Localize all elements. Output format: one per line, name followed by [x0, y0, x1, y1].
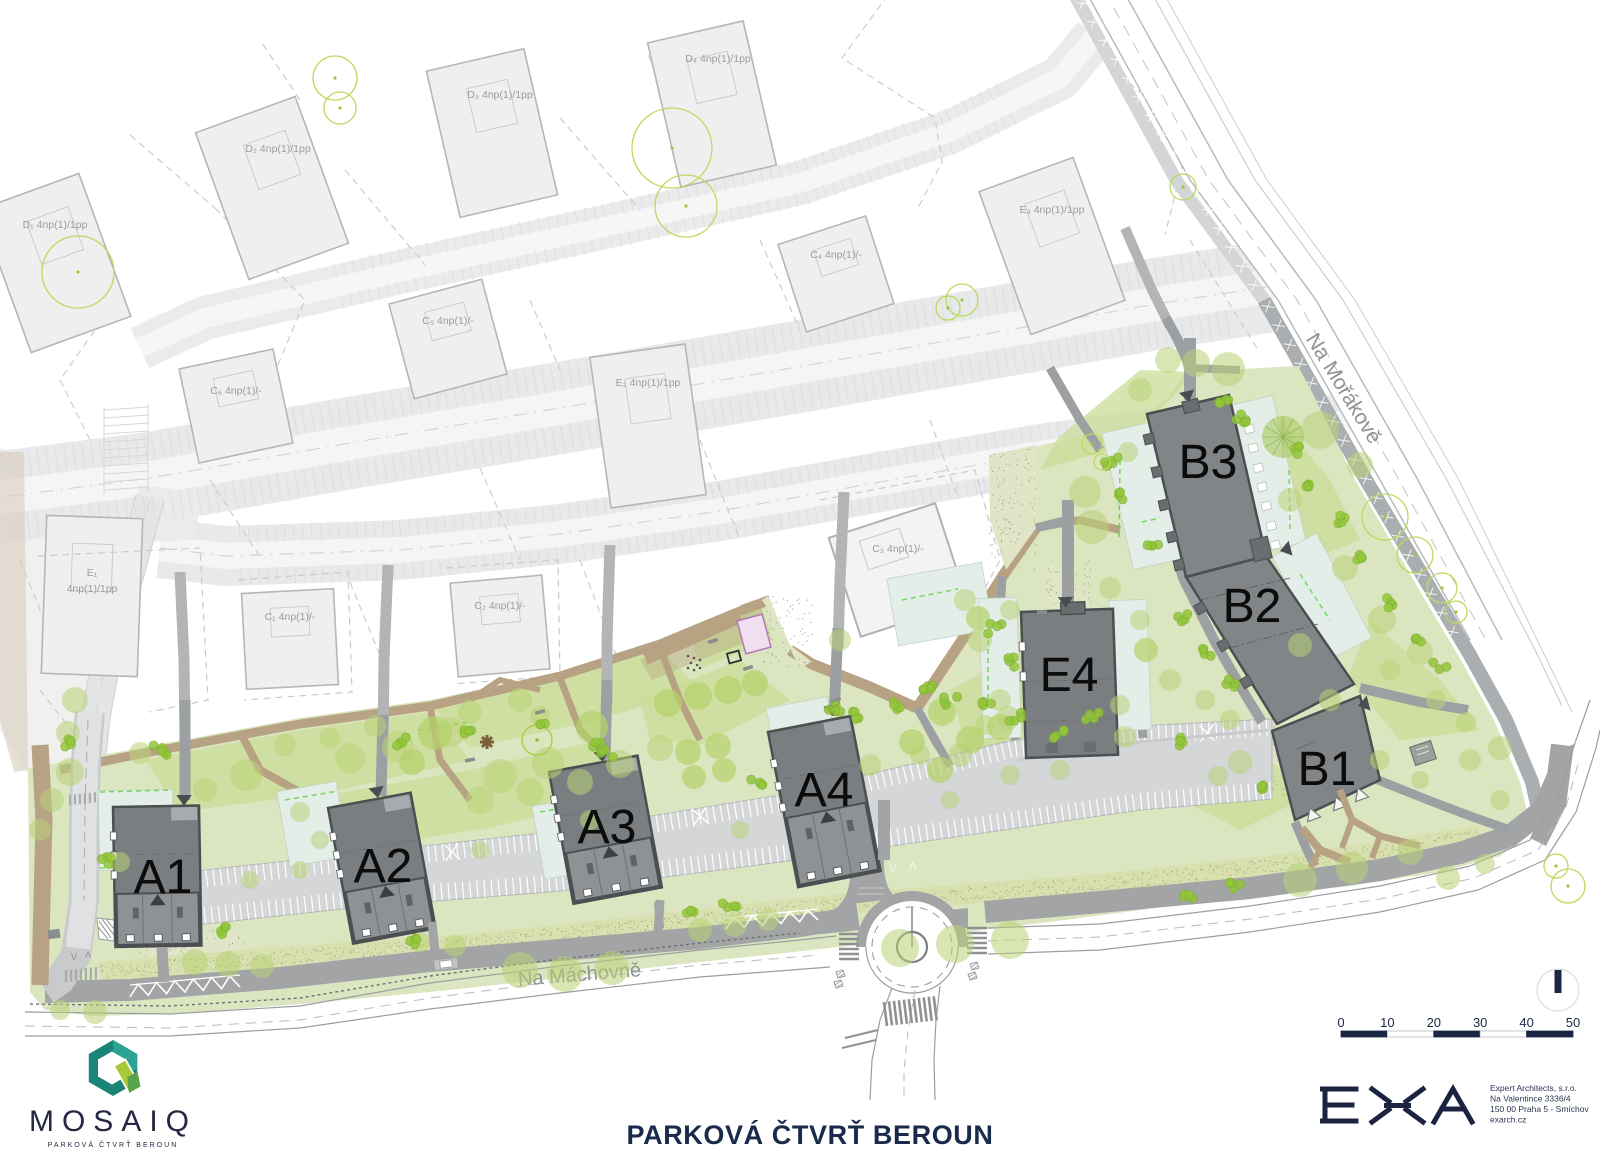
svg-text:A2: A2	[354, 840, 413, 893]
svg-text:Λ: Λ	[909, 859, 917, 873]
svg-text:B2: B2	[1223, 580, 1282, 633]
svg-text:E₂ 4np(1)/1pp: E₂ 4np(1)/1pp	[616, 377, 681, 389]
svg-text:Expert Architects, s.r.o.: Expert Architects, s.r.o.	[1490, 1083, 1577, 1093]
svg-text:D₁ 4np(1)/1pp: D₁ 4np(1)/1pp	[23, 219, 88, 231]
svg-text:exarch.cz: exarch.cz	[1490, 1115, 1526, 1125]
svg-text:0: 0	[1337, 1015, 1344, 1030]
svg-text:E4: E4	[1040, 649, 1099, 702]
svg-text:C₃ 4np(1)/-: C₃ 4np(1)/-	[872, 543, 924, 555]
svg-text:C₆ 4np(1)/-: C₆ 4np(1)/-	[210, 385, 262, 397]
svg-text:V: V	[71, 952, 77, 962]
svg-text:150 00 Praha 5 - Smíchov: 150 00 Praha 5 - Smíchov	[1490, 1104, 1590, 1114]
svg-text:C₅ 4np(1)/-: C₅ 4np(1)/-	[422, 315, 474, 327]
svg-text:30: 30	[1473, 1015, 1487, 1030]
svg-text:B1: B1	[1298, 743, 1357, 796]
svg-text:E₁: E₁	[87, 567, 98, 579]
svg-text:V: V	[889, 861, 897, 875]
svg-text:40: 40	[1519, 1015, 1533, 1030]
svg-text:4np(1)/1pp: 4np(1)/1pp	[67, 583, 118, 595]
svg-text:50: 50	[1566, 1015, 1580, 1030]
svg-text:Na Valentince 3336/4: Na Valentince 3336/4	[1490, 1094, 1571, 1104]
svg-text:A1: A1	[134, 851, 193, 904]
svg-text:A3: A3	[578, 801, 637, 854]
svg-text:C₂ 4np(1)/-: C₂ 4np(1)/-	[474, 600, 526, 612]
svg-text:D₃ 4np(1)/1pp: D₃ 4np(1)/1pp	[467, 89, 533, 101]
svg-text:D₄ 4np(1)/1pp: D₄ 4np(1)/1pp	[685, 53, 751, 65]
svg-text:Λ: Λ	[85, 950, 91, 960]
svg-text:10: 10	[1380, 1015, 1394, 1030]
svg-text:20: 20	[1427, 1015, 1441, 1030]
svg-text:MOSAIQ: MOSAIQ	[29, 1105, 197, 1138]
svg-text:PARKOVÁ ČTVRŤ BEROUN: PARKOVÁ ČTVRŤ BEROUN	[48, 1140, 179, 1149]
svg-text:E₃ 4np(1)/1pp: E₃ 4np(1)/1pp	[1020, 204, 1085, 216]
svg-text:D₂ 4np(1)/1pp: D₂ 4np(1)/1pp	[245, 143, 311, 155]
svg-text:A4: A4	[795, 764, 854, 817]
svg-text:C₄ 4np(1)/-: C₄ 4np(1)/-	[810, 249, 862, 261]
svg-text:C₁ 4np(1)/-: C₁ 4np(1)/-	[265, 611, 316, 623]
svg-text:B3: B3	[1179, 436, 1238, 489]
svg-text:PARKOVÁ ČTVRŤ BEROUN: PARKOVÁ ČTVRŤ BEROUN	[626, 1119, 993, 1150]
